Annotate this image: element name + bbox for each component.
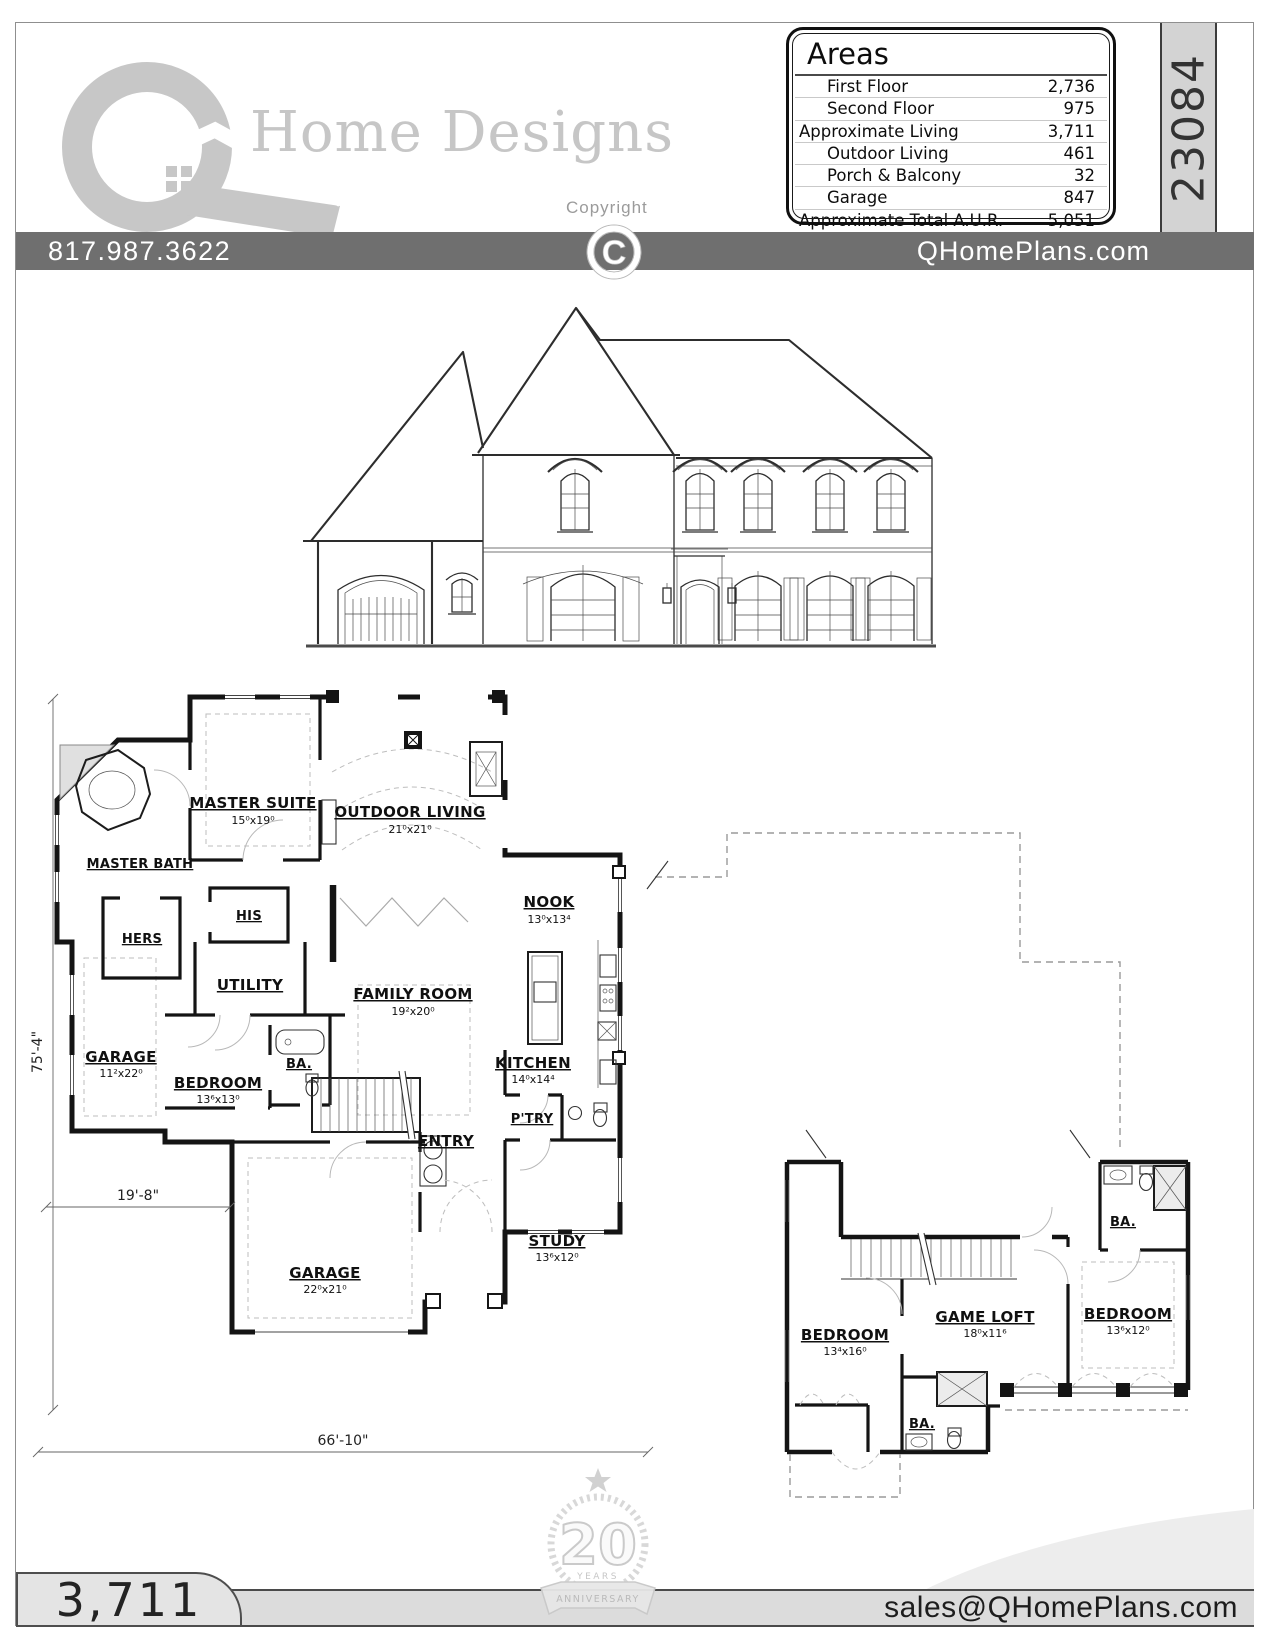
room-label-ba-top: BA. (1110, 1215, 1136, 1230)
roof-outline-dashed (647, 833, 1120, 1152)
first-floor-plan: 75'-4" 66'-10" 19'-8" MASTER SUITE 15⁰x1… (25, 668, 685, 1468)
plan-sheet: { "header": { "brand": "Home Designs", "… (0, 0, 1275, 1650)
room-label-garage-1: GARAGE (85, 1048, 156, 1066)
second-floor-stairs (841, 1232, 1017, 1285)
website: QHomePlans.com (917, 236, 1150, 267)
svg-text:21⁰x21⁰: 21⁰x21⁰ (388, 823, 432, 836)
room-label-ba: BA. (286, 1057, 312, 1072)
room-label-utility: UTILITY (217, 976, 284, 994)
elevation-first-floor-windows (523, 565, 931, 641)
room-label-pantry: P'TRY (511, 1112, 554, 1127)
areas-title: Areas (795, 34, 1107, 76)
room-label-outdoor-living: OUTDOOR LIVING (334, 803, 485, 821)
svg-text:18⁰x11⁶: 18⁰x11⁶ (963, 1327, 1007, 1340)
areas-table: Areas First Floor2,736 Second Floor975 A… (786, 27, 1116, 225)
areas-row: Second Floor975 (795, 98, 1107, 120)
door-swings (154, 770, 550, 1232)
copyright-icon: C (585, 212, 645, 290)
anniversary-banner: ANNIVERSARY (556, 1594, 640, 1605)
room-label-master-suite: MASTER SUITE (189, 794, 316, 812)
svg-text:13⁶x12⁰: 13⁶x12⁰ (535, 1251, 579, 1264)
anniversary-years: YEARS (576, 1572, 619, 1582)
living-area-value: 3,711 (56, 1573, 203, 1627)
brand-name: Home Designs (250, 100, 674, 165)
svg-text:19²x20⁰: 19²x20⁰ (391, 1005, 435, 1018)
room-label-garage-2: GARAGE (289, 1264, 360, 1282)
svg-text:13⁴x16⁰: 13⁴x16⁰ (823, 1345, 867, 1358)
room-label-kitchen: KITCHEN (495, 1054, 571, 1072)
areas-row: Outdoor Living461 (795, 143, 1107, 165)
second-floor-plan: BEDROOM 13⁴x16⁰ GAME LOFT 18⁰x11⁶ BEDROO… (635, 758, 1225, 1508)
copyright-symbol: C (602, 234, 627, 272)
elevation-dormer-windows (548, 459, 918, 532)
balcony-porch (790, 1262, 1188, 1497)
sales-email: sales@QHomePlans.com (884, 1591, 1238, 1625)
dim-left: 75'-4" (30, 1031, 46, 1073)
front-elevation-drawing (295, 283, 945, 655)
dim-garage: 19'-8" (117, 1188, 159, 1204)
svg-text:14⁰x14⁴: 14⁰x14⁴ (511, 1073, 555, 1086)
dim-bottom: 66'-10" (318, 1433, 369, 1449)
master-bath-fixtures (60, 745, 150, 830)
svg-text:13⁰x13⁴: 13⁰x13⁴ (527, 913, 571, 926)
svg-text:13⁶x13⁰: 13⁶x13⁰ (196, 1093, 240, 1106)
first-floor-room-labels: MASTER SUITE 15⁰x19⁰ OUTDOOR LIVING 21⁰x… (85, 794, 586, 1296)
room-label-bedroom-3: BEDROOM (1084, 1305, 1172, 1323)
elevation-walls-roof (303, 308, 936, 646)
room-label-entry: ENTRY (418, 1132, 475, 1150)
room-label-family-room: FAMILY ROOM (353, 985, 472, 1003)
plan-number-band: 23084 (1160, 23, 1217, 232)
room-label-ba-bottom: BA. (909, 1417, 935, 1432)
elevation-garage-door (338, 576, 424, 645)
elevation-small-window (446, 573, 478, 614)
svg-text:11²x22⁰: 11²x22⁰ (99, 1067, 143, 1080)
svg-text:13⁶x12⁰: 13⁶x12⁰ (1106, 1324, 1150, 1337)
room-label-his: HIS (236, 909, 262, 924)
bath-top-fixtures (1104, 1166, 1186, 1210)
areas-row: Garage847 (795, 187, 1107, 209)
areas-row: Approximate Total A.U.R.5,051 (795, 210, 1107, 231)
room-label-bedroom: BEDROOM (174, 1074, 262, 1092)
plan-number: 23084 (1163, 53, 1214, 203)
svg-text:22⁰x21⁰: 22⁰x21⁰ (303, 1283, 347, 1296)
powder-fixtures (569, 1103, 608, 1127)
room-label-game-loft: GAME LOFT (935, 1308, 1035, 1326)
room-label-study: STUDY (529, 1232, 587, 1250)
anniversary-number: 20 (559, 1513, 637, 1578)
bath-bottom-fixtures (906, 1372, 987, 1450)
room-label-bedroom-2: BEDROOM (801, 1326, 889, 1344)
anniversary-seal-icon: 20 YEARS ANNIVERSARY (533, 1462, 663, 1644)
room-label-nook: NOOK (524, 893, 576, 911)
phone-number: 817.987.3622 (48, 236, 231, 267)
column-icon (404, 731, 422, 749)
areas-row: First Floor2,736 (795, 76, 1107, 98)
room-label-hers: HERS (122, 932, 162, 947)
areas-row: Approximate Living3,711 (795, 121, 1107, 143)
svg-text:15⁰x19⁰: 15⁰x19⁰ (231, 814, 275, 827)
room-label-master-bath: MASTER BATH (87, 857, 194, 872)
living-area-tab: 3,711 (16, 1572, 242, 1627)
areas-row: Porch & Balcony32 (795, 165, 1107, 187)
